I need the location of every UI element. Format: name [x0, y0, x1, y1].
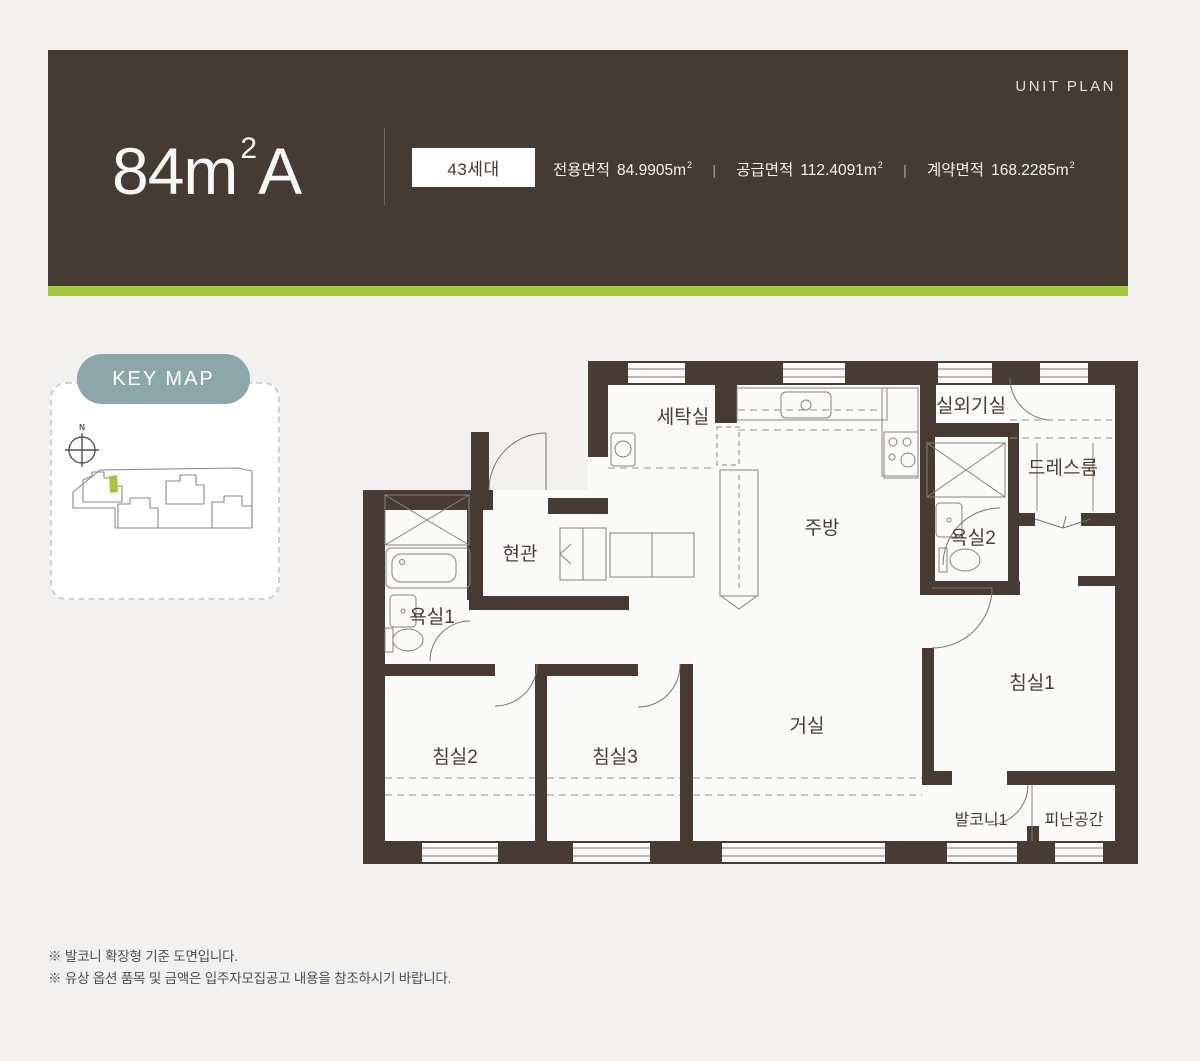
header: UNIT PLAN 84m2A 43세대 전용면적84.9905m2 | 공급면… [48, 50, 1128, 286]
page-title: 84m2A [112, 132, 301, 209]
footnote-line: ※ 발코니 확장형 기준 도면입니다. [48, 946, 451, 968]
floor-plan: 세탁실 실외기실 드레스룸 현관 주방 욕실2 욕실1 침실1 침실2 침실3 … [355, 348, 1145, 868]
accent-bar [48, 286, 1128, 296]
keymap-drawing: N [52, 384, 278, 598]
site-outline [73, 468, 252, 528]
room-label-bath1: 욕실1 [409, 606, 455, 628]
room-label-bath2: 욕실2 [950, 527, 996, 549]
area-info: 전용면적84.9905m2 | 공급면적112.4091m2 | 계약면적168… [553, 158, 1075, 180]
title-main: 84m [112, 134, 237, 208]
room-label-laundry: 세탁실 [657, 406, 709, 428]
area-supply: 공급면적112.4091m2 [736, 162, 882, 179]
area-separator: | [712, 162, 716, 178]
room-label-entrance: 현관 [503, 543, 538, 565]
room-label-outdoor-unit: 실외기실 [936, 395, 1006, 417]
room-label-bedroom3: 침실3 [592, 746, 638, 768]
keymap-building-4 [212, 496, 252, 528]
keymap-building-3 [166, 475, 204, 504]
room-label-dressroom: 드레스룸 [1028, 457, 1098, 479]
keymap-building-2 [118, 498, 158, 528]
room-label-bedroom2: 침실2 [432, 746, 478, 768]
compass-icon [65, 433, 99, 467]
keymap-highlighted-unit [109, 475, 118, 493]
room-label-living: 거실 [790, 715, 825, 737]
area-contract: 계약면적168.2285m2 [927, 162, 1075, 179]
keymap-panel: KEY MAP N [50, 382, 280, 600]
title-divider [384, 128, 385, 205]
room-label-refuge: 피난공간 [1045, 811, 1104, 829]
room-label-kitchen: 주방 [805, 517, 840, 539]
footnote-line: ※ 유상 옵션 품목 및 금액은 입주자모집공고 내용을 참조하시기 바랍니다. [48, 968, 451, 990]
title-sup: 2 [240, 132, 256, 165]
unit-plan-label: UNIT PLAN [1015, 78, 1116, 95]
area-separator: | [903, 162, 907, 178]
room-label-balcony1: 발코니1 [954, 811, 1007, 829]
area-exclusive: 전용면적84.9905m2 [553, 162, 692, 179]
title-suffix: A [258, 134, 301, 208]
compass-north-label: N [79, 423, 85, 432]
footnotes: ※ 발코니 확장형 기준 도면입니다. ※ 유상 옵션 품목 및 금액은 입주자… [48, 946, 451, 989]
household-badge: 43세대 [412, 148, 535, 187]
room-label-bedroom1: 침실1 [1009, 672, 1055, 694]
